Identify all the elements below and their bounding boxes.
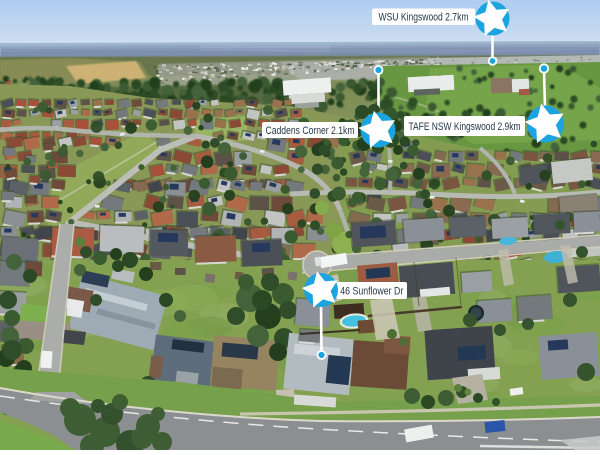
svg-text:46 Sunflower Dr: 46 Sunflower Dr <box>340 286 403 298</box>
svg-text:Caddens Corner 2.1km: Caddens Corner 2.1km <box>266 125 355 137</box>
svg-text:WSU Kingswood 2.7km: WSU Kingswood 2.7km <box>379 12 469 24</box>
svg-text:TAFE NSW Kingswood 2.9km: TAFE NSW Kingswood 2.9km <box>409 121 521 133</box>
